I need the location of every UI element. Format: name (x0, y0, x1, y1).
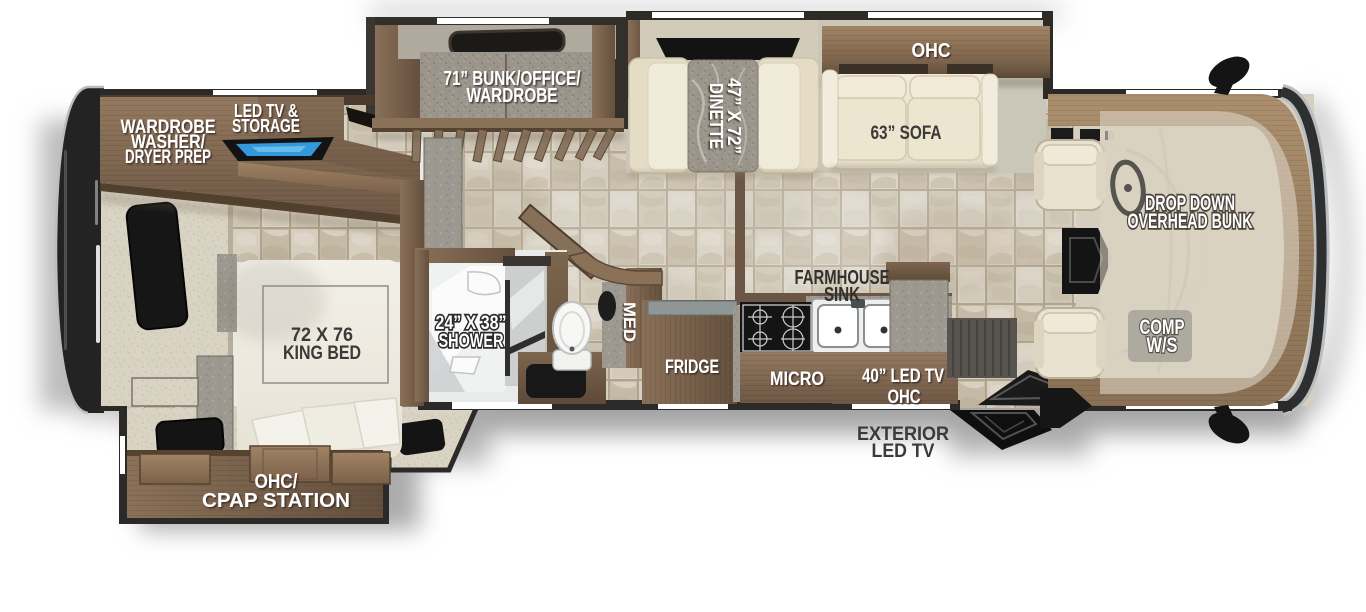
svg-text:OHC: OHC (888, 387, 921, 408)
svg-text:FRIDGE: FRIDGE (665, 357, 719, 378)
svg-text:63” SOFA: 63” SOFA (871, 122, 942, 144)
svg-text:W/S: W/S (1147, 334, 1178, 357)
svg-text:KING BED: KING BED (283, 342, 361, 364)
svg-text:CPAP STATION: CPAP STATION (202, 490, 350, 512)
svg-text:SHOWER: SHOWER (439, 331, 504, 352)
svg-text:MED: MED (620, 302, 638, 342)
svg-text:OHC: OHC (912, 40, 951, 62)
svg-text:WARDROBE: WARDROBE (467, 85, 558, 107)
svg-text:STORAGE: STORAGE (232, 115, 300, 136)
svg-text:DINETTE: DINETTE (706, 83, 727, 149)
svg-text:LED TV: LED TV (872, 440, 935, 462)
svg-text:MICRO: MICRO (770, 368, 824, 390)
svg-text:SINK: SINK (824, 284, 860, 306)
svg-text:40” LED TV: 40” LED TV (862, 366, 944, 387)
svg-text:OVERHEAD BUNK: OVERHEAD BUNK (1128, 210, 1253, 233)
svg-text:DRYER PREP: DRYER PREP (125, 147, 211, 168)
